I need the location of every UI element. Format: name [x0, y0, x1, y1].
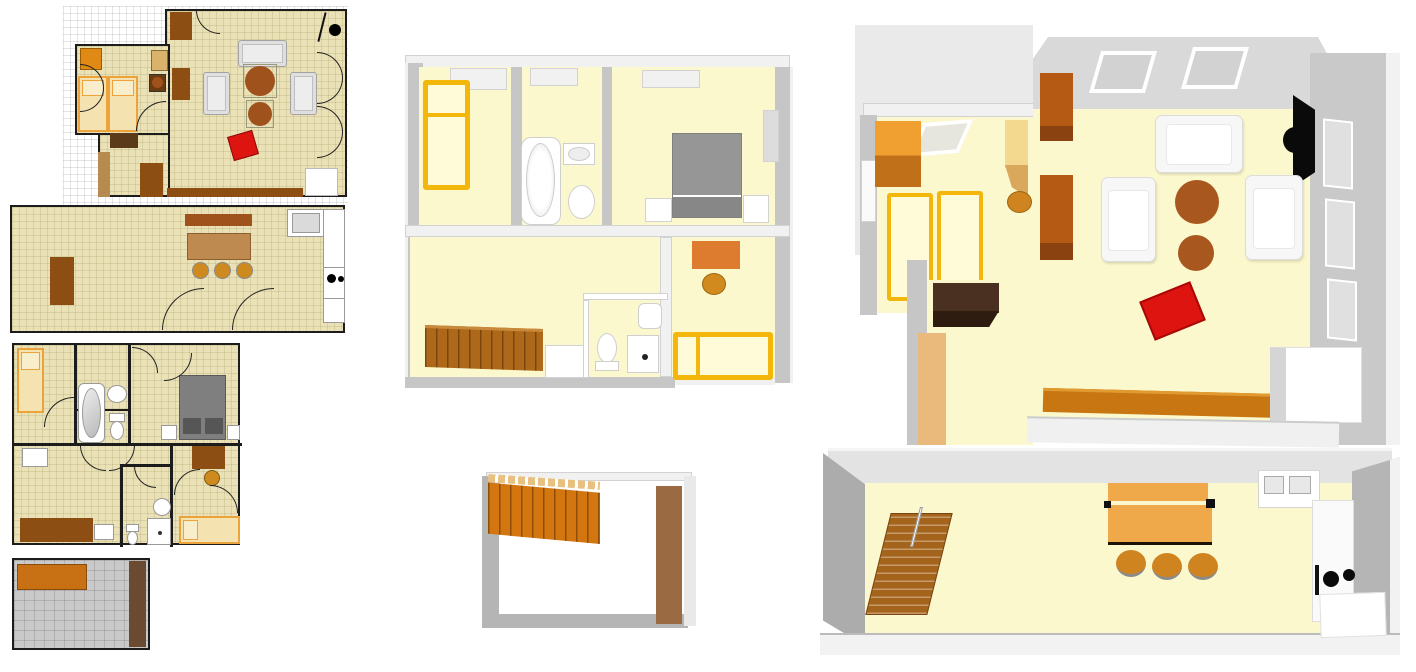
window-pane: [1325, 198, 1355, 269]
stool: [1007, 191, 1032, 213]
single-bed: [17, 348, 44, 413]
round-table-large: [1175, 180, 1219, 224]
window: [530, 68, 578, 86]
white-cabinet: [545, 345, 585, 378]
toilet-base: [595, 361, 619, 371]
toilet: [127, 531, 138, 545]
burner-large: [1323, 571, 1339, 587]
white-cabinet: [1319, 592, 1386, 638]
sink-basin: [1289, 476, 1311, 494]
sink-unit: [287, 209, 325, 237]
door: [861, 160, 876, 222]
dresser: [933, 283, 999, 313]
dining-table: [1108, 505, 1212, 545]
bed-right: [108, 76, 138, 132]
door-arc: [109, 445, 135, 471]
toilet: [568, 185, 595, 219]
wall-mid: [405, 225, 790, 237]
toilet: [110, 421, 124, 440]
sink: [153, 498, 171, 516]
stool: [204, 470, 220, 486]
wall-bottom: [405, 377, 675, 388]
nightstand: [743, 195, 769, 223]
desk: [151, 50, 168, 71]
plan-2d-kitchen: [10, 205, 345, 333]
sink: [638, 303, 662, 329]
cabinet: [140, 163, 163, 197]
door-arc: [44, 397, 74, 427]
tv: [329, 24, 341, 36]
wall-cabinet: [1040, 175, 1073, 260]
table-corner: [1104, 501, 1111, 508]
bath-wall: [583, 300, 589, 378]
door-panel: [129, 561, 146, 647]
sink-basins: [292, 213, 320, 233]
view-3d-upper: [405, 55, 790, 390]
wardrobe: [20, 518, 93, 542]
window-right-wall: [763, 110, 779, 162]
armchair-left: [1101, 177, 1156, 262]
sideboard: [167, 188, 303, 197]
dining-table: [187, 233, 251, 260]
wall: [120, 464, 123, 547]
sideboard: [185, 214, 252, 226]
wall: [170, 444, 173, 466]
stool: [702, 273, 726, 295]
white-cabinet: [1270, 347, 1362, 423]
bathtub: [78, 383, 105, 443]
view-3d-living: [855, 25, 1400, 445]
sink-basin: [1264, 476, 1284, 494]
shower-drain: [158, 531, 162, 535]
bed-rail: [696, 337, 700, 375]
shower: [147, 518, 171, 545]
plan-2d-basement: [12, 558, 150, 650]
double-bed-gray: [672, 133, 742, 218]
burner-small: [1343, 569, 1355, 581]
dining-table-back: [1108, 483, 1208, 501]
oven-handle: [1315, 565, 1319, 595]
desk: [192, 446, 225, 469]
bath-wall: [583, 293, 668, 300]
stool: [1116, 550, 1146, 577]
wall-cabinet: [1040, 73, 1073, 141]
tall-cabinet: [170, 12, 192, 40]
wall-top-bedroom: [863, 103, 1035, 117]
bed-foot: [673, 195, 741, 217]
sink-unit: [1258, 470, 1320, 508]
bed-rail: [428, 113, 465, 117]
door-arc: [232, 288, 274, 330]
bathtub-basin: [526, 143, 555, 217]
stool: [152, 77, 163, 88]
stove: [323, 267, 345, 299]
door-panel-tan: [918, 333, 946, 445]
armchair-right: [290, 72, 317, 115]
armchair-right: [1245, 175, 1303, 260]
shower-drain: [642, 354, 648, 360]
nightstand: [161, 425, 177, 440]
stool: [1188, 553, 1218, 580]
sofa: [238, 40, 287, 67]
view-3d-kitchen: [820, 445, 1400, 655]
floorplan-collage: [0, 0, 1416, 672]
door-arc: [210, 485, 238, 513]
wall: [74, 345, 77, 444]
white-cabinet: [94, 524, 114, 540]
round-table-small: [248, 102, 272, 126]
single-bed: [179, 516, 240, 544]
wardrobe-cube: [875, 121, 921, 187]
nightstand: [227, 425, 240, 440]
dresser-front: [933, 311, 999, 327]
pillow: [183, 418, 201, 434]
pillow: [205, 418, 223, 434]
sink-basin: [568, 147, 590, 161]
door-arc: [162, 288, 204, 330]
table-corner: [1206, 499, 1215, 508]
single-bed-yellow: [673, 332, 773, 380]
white-cabinet: [22, 448, 48, 467]
tv-speaker: [1283, 127, 1307, 153]
door-arc: [132, 347, 158, 373]
door-panel-brown: [656, 486, 682, 624]
nightstand: [645, 198, 672, 222]
bathtub: [521, 137, 561, 225]
stool-frame: [149, 74, 166, 92]
round-table-small: [1178, 235, 1214, 271]
double-bed-gray: [179, 375, 226, 440]
bathtub-basin: [82, 388, 101, 438]
view-3d-basement: [478, 468, 700, 635]
toilet: [597, 333, 617, 363]
plan-2d-upper: [12, 343, 240, 545]
sofa: [1155, 115, 1243, 173]
desk-top: [1005, 120, 1028, 168]
stairs: [425, 325, 543, 371]
cabinet: [50, 257, 74, 305]
wall: [602, 67, 612, 227]
sink: [563, 143, 595, 165]
stool: [214, 262, 231, 279]
burner-large: [327, 274, 336, 283]
wall-top-living: [1033, 37, 1333, 109]
burner-small: [338, 276, 344, 282]
wall-bottom: [820, 633, 1400, 655]
shower: [627, 335, 659, 373]
armchair-left: [203, 72, 230, 115]
shelf: [98, 152, 110, 197]
door-arc: [134, 466, 156, 488]
cabinet: [172, 68, 190, 100]
wall-bottom: [1027, 416, 1339, 447]
plan-2d-ground-living: [63, 6, 348, 206]
dark-cabinet: [110, 133, 138, 148]
window-pane: [1323, 118, 1353, 189]
wall: [128, 345, 131, 444]
stool: [1152, 553, 1182, 580]
round-table-large: [245, 66, 275, 96]
door-arc: [174, 469, 200, 495]
kitchen-counter: [323, 209, 345, 323]
door-arc: [80, 445, 106, 471]
window: [642, 70, 700, 88]
stool: [192, 262, 209, 279]
white-cabinet: [305, 168, 338, 196]
sink: [107, 385, 127, 403]
stairs: [17, 564, 87, 590]
window-pane: [1327, 278, 1357, 341]
wall-right: [684, 476, 696, 626]
stool: [236, 262, 253, 279]
single-bed-yellow: [423, 80, 470, 190]
desk-orange: [692, 241, 740, 269]
